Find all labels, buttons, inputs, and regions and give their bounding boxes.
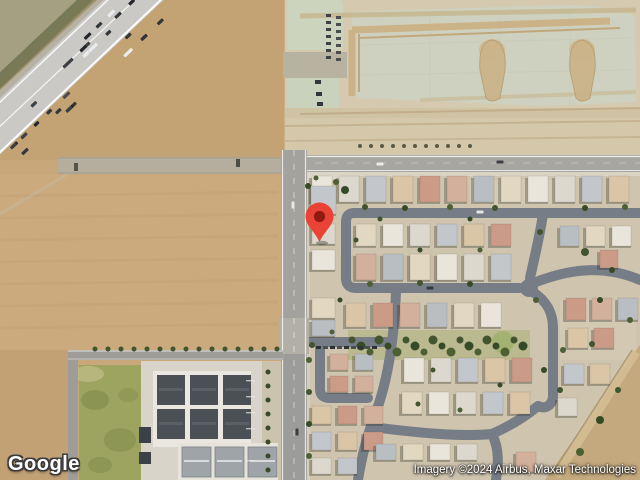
dirt-road [58, 157, 285, 174]
construction-area [283, 0, 640, 158]
google-logo[interactable]: Google [8, 453, 80, 476]
map-canvas[interactable]: Google Imagery ©2024 Airbus, Maxar Techn… [0, 0, 640, 480]
main-road-horizontal [283, 155, 640, 172]
building-under-construction [182, 447, 277, 477]
imagery-attribution: Imagery ©2024 Airbus, Maxar Technologies [414, 464, 636, 476]
main-road-vertical [279, 150, 309, 480]
parked-cars [316, 346, 377, 349]
apartment-complex [68, 350, 283, 480]
